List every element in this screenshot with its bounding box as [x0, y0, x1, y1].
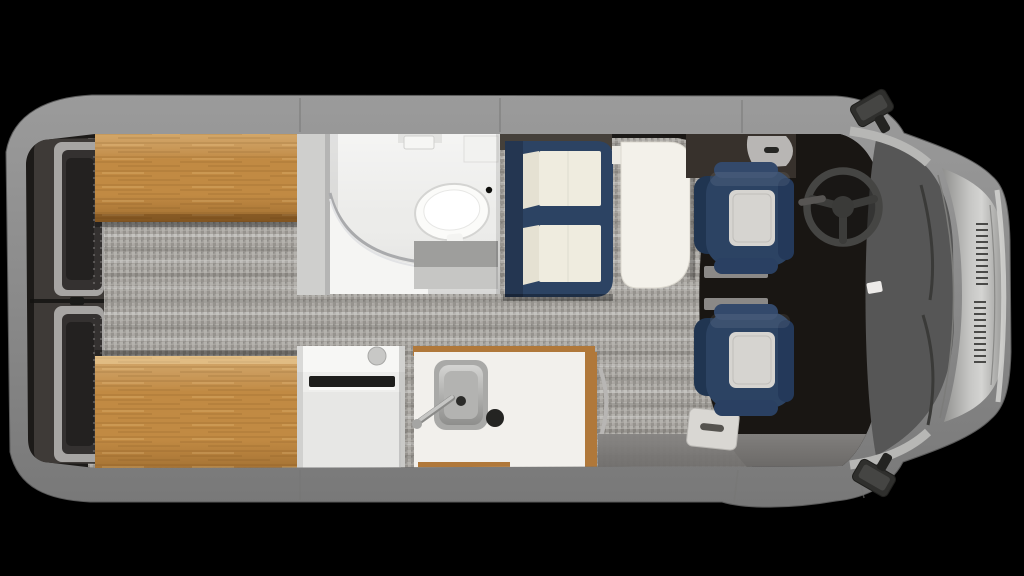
wet-bath [330, 134, 501, 294]
rear-door-latch [70, 297, 84, 305]
floorplan-canvas [0, 0, 1024, 576]
dinette-table [612, 142, 695, 288]
seat-headrest [729, 332, 775, 388]
sofa-cushion-1 [523, 151, 601, 209]
flush-button [486, 187, 492, 193]
skylight-vent [404, 136, 434, 149]
kitchen-sink [434, 360, 488, 430]
door-handle-slot [764, 147, 779, 153]
van-floorplan [0, 0, 1024, 576]
stove-knob [486, 409, 504, 427]
sink-drain [456, 396, 466, 406]
seat-headrest [729, 190, 775, 246]
rear-bench-top [95, 133, 298, 227]
steering-wheel [807, 171, 879, 243]
bath-step [414, 241, 498, 269]
sofa [500, 134, 613, 301]
bath-shelf [464, 136, 498, 162]
fridge-handle [309, 376, 395, 387]
rear-bench-bottom [95, 350, 298, 475]
sofa-cushion-2 [523, 225, 601, 285]
cabinet-cap [368, 347, 386, 365]
galley-counter [412, 346, 606, 474]
rear-doors [30, 138, 104, 464]
counter-side-panel [585, 352, 597, 470]
